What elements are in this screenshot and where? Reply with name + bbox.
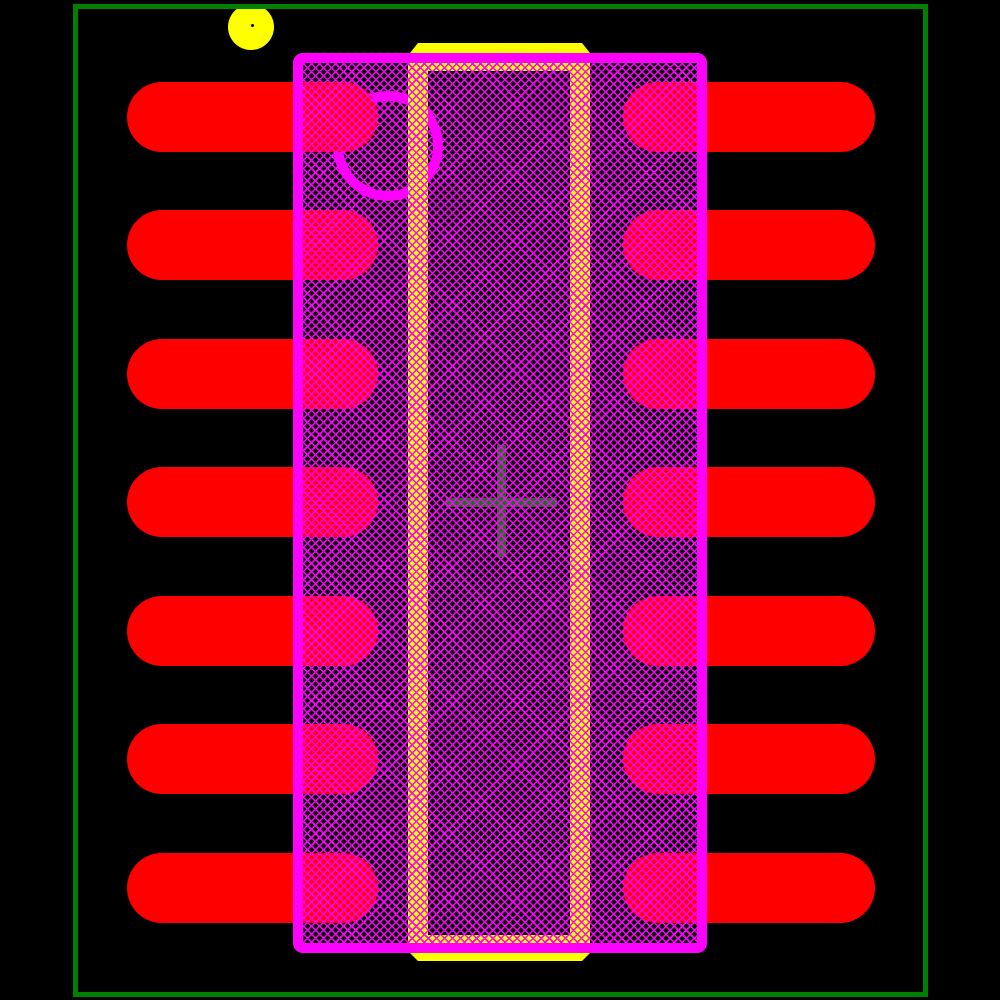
silkscreen-top-bar bbox=[410, 43, 590, 53]
silkscreen-bottom-bar bbox=[410, 953, 590, 961]
footprint-canvas[interactable] bbox=[0, 0, 1000, 1000]
assembly-body-outline bbox=[293, 53, 707, 953]
